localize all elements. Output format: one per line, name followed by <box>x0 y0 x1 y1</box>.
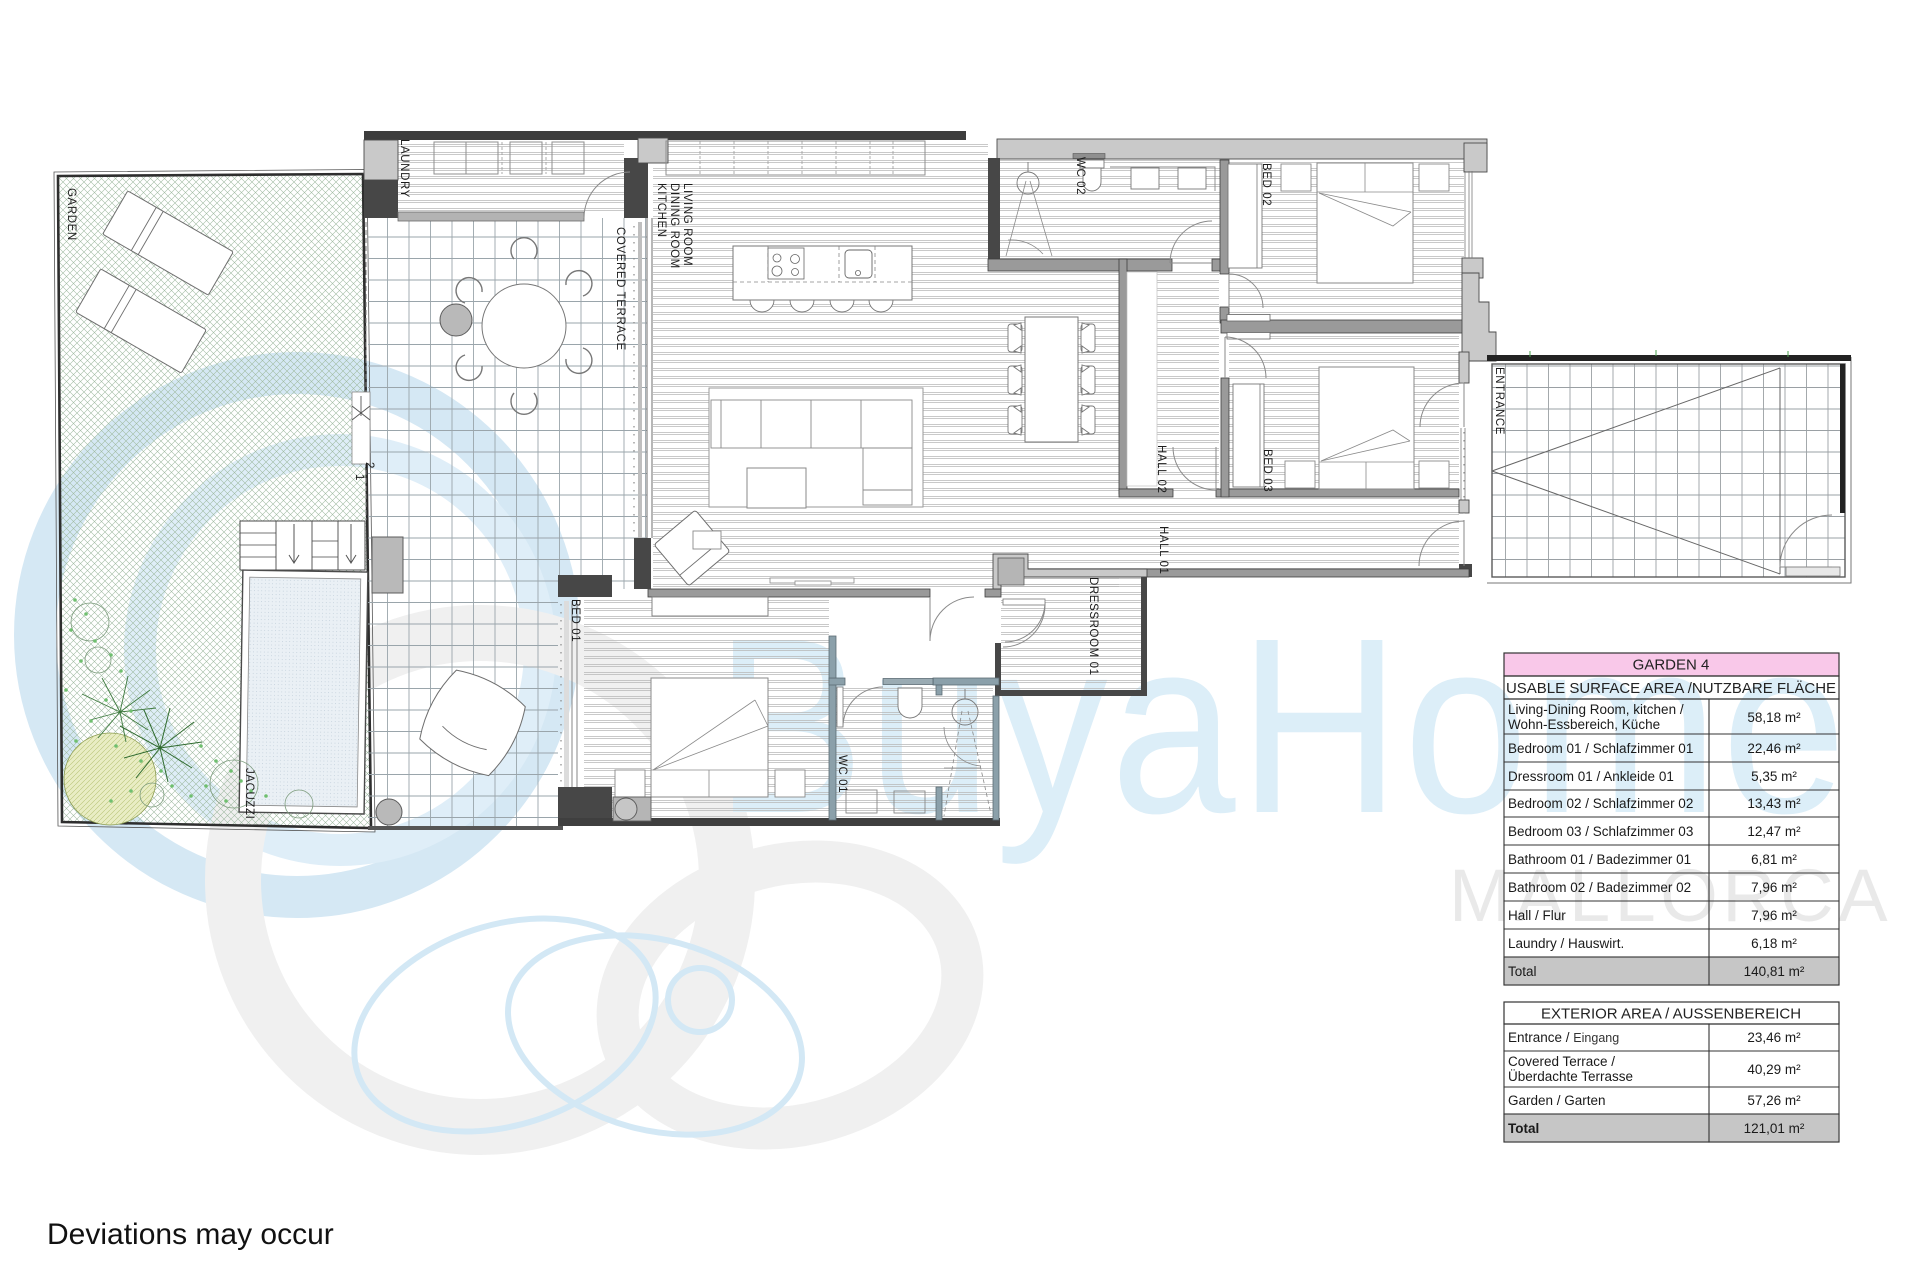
svg-text:JACUZZI: JACUZZI <box>243 768 255 819</box>
svg-text:BED 01: BED 01 <box>569 599 581 642</box>
svg-text:Laundry / Hauswirt.: Laundry / Hauswirt. <box>1508 936 1624 951</box>
svg-text:Bedroom 03 / Schlafzimmer 03: Bedroom 03 / Schlafzimmer 03 <box>1508 824 1693 839</box>
svg-text:Bathroom 01 / Badezimmer 01: Bathroom 01 / Badezimmer 01 <box>1508 852 1691 867</box>
svg-text:HALL 01: HALL 01 <box>1157 526 1169 575</box>
svg-text:121,01 m²: 121,01 m² <box>1744 1121 1805 1136</box>
svg-text:Total: Total <box>1508 1121 1539 1136</box>
svg-text:Dressroom 01 / Ankleide 01: Dressroom 01 / Ankleide 01 <box>1508 769 1674 784</box>
svg-text:DINING ROOM: DINING ROOM <box>668 183 680 269</box>
svg-text:23,46 m²: 23,46 m² <box>1747 1030 1801 1045</box>
svg-text:140,81 m²: 140,81 m² <box>1744 964 1805 979</box>
svg-text:22,46 m²: 22,46 m² <box>1747 741 1801 756</box>
svg-text:58,18 m²: 58,18 m² <box>1747 710 1801 725</box>
svg-text:Entrance / Eingang: Entrance / Eingang <box>1508 1030 1619 1045</box>
svg-text:BED 03: BED 03 <box>1261 449 1273 492</box>
svg-text:Bedroom 01 / Schlafzimmer 01: Bedroom 01 / Schlafzimmer 01 <box>1508 741 1693 756</box>
svg-text:Garden / Garten: Garden / Garten <box>1508 1093 1606 1108</box>
svg-text:7,96 m²: 7,96 m² <box>1751 908 1797 923</box>
svg-text:Living-Dining Room, kitchen /: Living-Dining Room, kitchen / <box>1508 702 1684 717</box>
svg-text:Bedroom 02 / Schlafzimmer 02: Bedroom 02 / Schlafzimmer 02 <box>1508 796 1693 811</box>
svg-text:KITCHEN: KITCHEN <box>655 183 667 238</box>
svg-text:13,43 m²: 13,43 m² <box>1747 796 1801 811</box>
svg-text:LIVING ROOM: LIVING ROOM <box>681 183 693 266</box>
svg-text:WC 01: WC 01 <box>836 755 848 793</box>
svg-text:COVERED TERRACE: COVERED TERRACE <box>614 227 626 351</box>
svg-text:57,26 m²: 57,26 m² <box>1747 1093 1801 1108</box>
svg-text:BED 02: BED 02 <box>1260 163 1272 206</box>
svg-text:EXTERIOR AREA / AUSSENBEREICH: EXTERIOR AREA / AUSSENBEREICH <box>1541 1006 1801 1023</box>
svg-text:Total: Total <box>1508 964 1537 979</box>
svg-text:12,47 m²: 12,47 m² <box>1747 824 1801 839</box>
svg-text:1: 1 <box>353 474 365 481</box>
svg-text:Hall / Flur: Hall / Flur <box>1508 908 1566 923</box>
svg-text:USABLE SURFACE AREA /NUTZBARE: USABLE SURFACE AREA /NUTZBARE FLÄCHE <box>1506 680 1836 697</box>
svg-text:ENTRANCE: ENTRANCE <box>1493 367 1505 435</box>
svg-text:GARDEN: GARDEN <box>65 188 77 241</box>
svg-text:GARDEN 4: GARDEN 4 <box>1633 657 1710 674</box>
svg-text:Überdachte Terrasse: Überdachte Terrasse <box>1508 1069 1633 1084</box>
svg-text:DRESSROOM 01: DRESSROOM 01 <box>1087 577 1099 676</box>
svg-text:Bathroom 02 / Badezimmer 02: Bathroom 02 / Badezimmer 02 <box>1508 880 1691 895</box>
svg-text:LAUNDRY: LAUNDRY <box>398 139 410 198</box>
svg-text:6,18 m²: 6,18 m² <box>1751 936 1797 951</box>
svg-text:Covered Terrace /: Covered Terrace / <box>1508 1054 1615 1069</box>
svg-text:5,35 m²: 5,35 m² <box>1751 769 1797 784</box>
svg-text:6,81 m²: 6,81 m² <box>1751 852 1797 867</box>
svg-text:7,96 m²: 7,96 m² <box>1751 880 1797 895</box>
svg-text:40,29 m²: 40,29 m² <box>1747 1062 1801 1077</box>
svg-text:Deviations may occur: Deviations may occur <box>47 1218 334 1251</box>
svg-text:2: 2 <box>363 462 375 469</box>
svg-text:HALL 02: HALL 02 <box>1155 445 1167 494</box>
svg-text:WC 02: WC 02 <box>1074 157 1086 195</box>
svg-text:Wohn-Essbereich, Küche: Wohn-Essbereich, Küche <box>1508 717 1660 732</box>
